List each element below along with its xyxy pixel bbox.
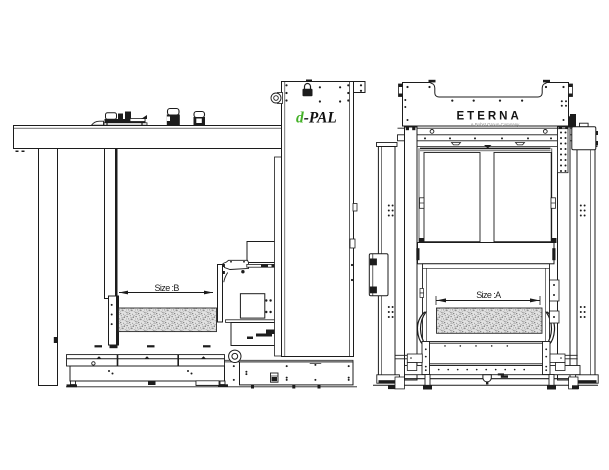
svg-text:d-PAL: d-PAL — [296, 110, 337, 127]
svg-text:Size :B: Size :B — [155, 283, 180, 293]
svg-text:ETERNA: ETERNA — [457, 110, 522, 122]
svg-text:A Bobst Group Company: A Bobst Group Company — [471, 122, 520, 127]
svg-text:Size :A: Size :A — [476, 290, 501, 300]
